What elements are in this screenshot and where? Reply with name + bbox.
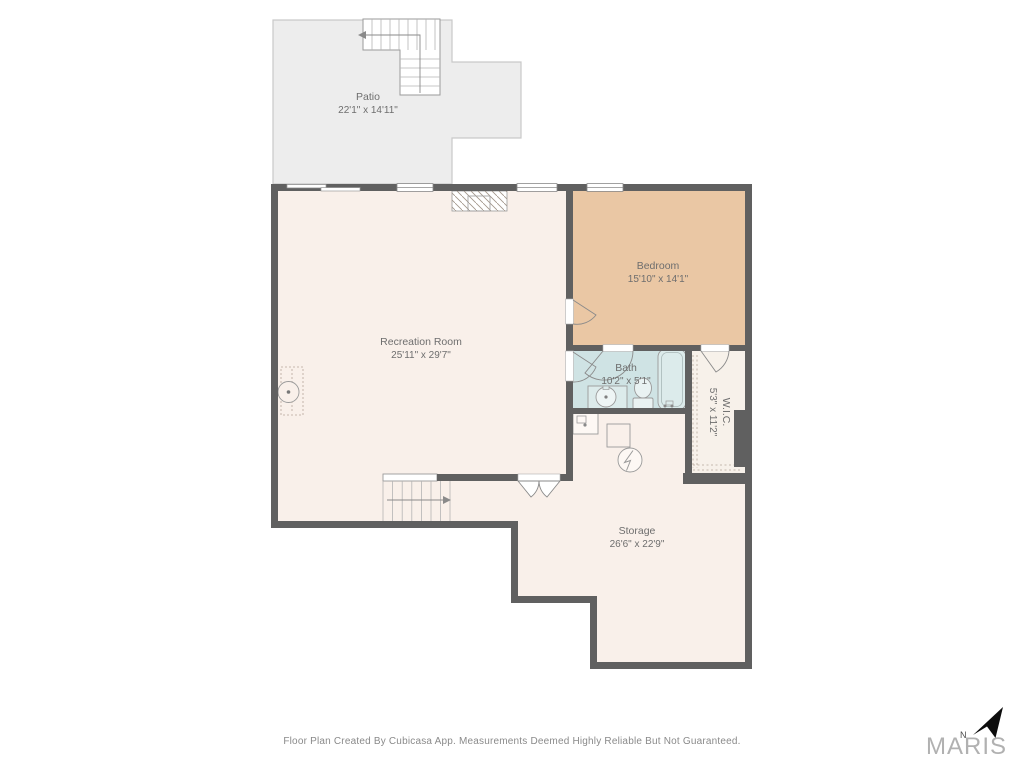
vanity-sink <box>588 386 627 409</box>
toilet <box>633 378 653 409</box>
window <box>517 184 557 192</box>
water-heater-icon <box>618 448 642 472</box>
floorplan-canvas <box>0 0 1024 768</box>
window <box>397 184 433 192</box>
utility-sink <box>573 413 598 434</box>
maris-brand-text: MARIS <box>926 733 1007 761</box>
window <box>587 184 623 192</box>
footer-disclaimer: Floor Plan Created By Cubicasa App. Meas… <box>0 736 1024 747</box>
bathtub <box>658 349 686 410</box>
bedroom-floor <box>573 191 745 345</box>
hearth-hatched-box <box>452 191 507 211</box>
maris-logo: N MARIS <box>924 700 1024 762</box>
